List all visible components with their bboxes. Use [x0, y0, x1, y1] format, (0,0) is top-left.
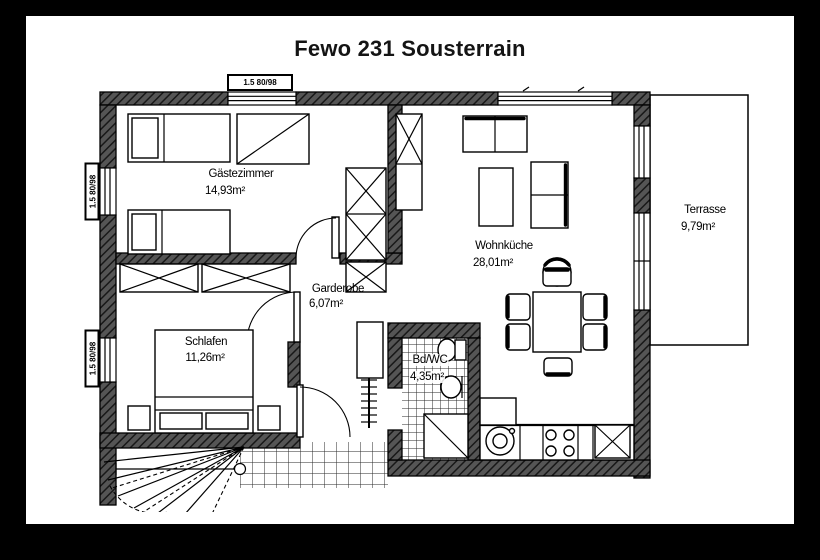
- nightstand-right: [258, 406, 280, 430]
- guest-wardrobe: [346, 168, 386, 260]
- bedroom-closet-2: [202, 264, 290, 292]
- duct-shaft: [396, 114, 422, 210]
- fridge: [595, 425, 630, 458]
- label-schlafen-name: Schlafen: [185, 336, 227, 348]
- label-badwc-area: 4,35m²: [409, 371, 445, 383]
- nightstand-left: [128, 406, 150, 430]
- guest-room-furniture: [128, 114, 422, 260]
- dining-table: [533, 292, 581, 352]
- window-right-upper: [634, 126, 650, 178]
- kitchen-sink: [486, 427, 515, 455]
- label-terrasse-area: 9,79m²: [681, 221, 715, 233]
- label-wohnkueche-area: 28,01m²: [473, 257, 513, 269]
- guest-room-door: [296, 217, 339, 258]
- floor-plan-drawing: [0, 0, 820, 560]
- label-gaestezimmer-name: Gästezimmer: [208, 168, 273, 180]
- label-wohnkueche-name: Wohnküche: [475, 240, 533, 252]
- radiator: [361, 378, 377, 428]
- window-label-left-lower: 1.5 80/98: [85, 330, 100, 388]
- hall-tiles: [240, 442, 388, 488]
- doors: [247, 217, 350, 437]
- guest-bed-2-pillow: [132, 214, 156, 250]
- label-schlafen-area: 11,26m²: [185, 352, 224, 364]
- sofa: [463, 116, 527, 152]
- living-kitchen-furniture: [463, 116, 634, 460]
- kitchen-cabinet: [480, 398, 516, 425]
- terrace-outline: [650, 95, 748, 345]
- label-gaestezimmer-area: 14,93m²: [205, 185, 245, 197]
- label-garderobe-area: 6,07m²: [309, 298, 343, 310]
- bedroom-door: [247, 292, 300, 342]
- stair-start-marker: [235, 464, 246, 475]
- floor-plan-screenshot: { "title": "Fewo 231 Sousterrain", "room…: [0, 0, 820, 560]
- label-terrasse-name: Terrasse: [684, 204, 726, 216]
- guest-bed-1-pillow: [132, 118, 158, 158]
- window-label-left-upper: 1.5 80/98: [85, 163, 100, 221]
- window-left-upper: [100, 168, 116, 215]
- terrace-door: [634, 213, 650, 310]
- hall-cabinet: [357, 322, 383, 378]
- window-top-right: [498, 87, 612, 105]
- hall-door: [297, 385, 350, 437]
- bedroom-furniture: [120, 264, 290, 433]
- window-label-top: 1.5 80/98: [227, 74, 293, 91]
- window-left-lower: [100, 338, 116, 382]
- bedroom-closet-1: [120, 264, 198, 292]
- staircase: [104, 447, 246, 514]
- window-top-left: [228, 92, 296, 105]
- label-badwc-name: Bd/WC: [412, 354, 449, 366]
- loveseat: [531, 162, 568, 228]
- coffee-table: [479, 168, 513, 226]
- label-garderobe-name: Garderobe: [312, 283, 364, 295]
- shower: [424, 414, 468, 458]
